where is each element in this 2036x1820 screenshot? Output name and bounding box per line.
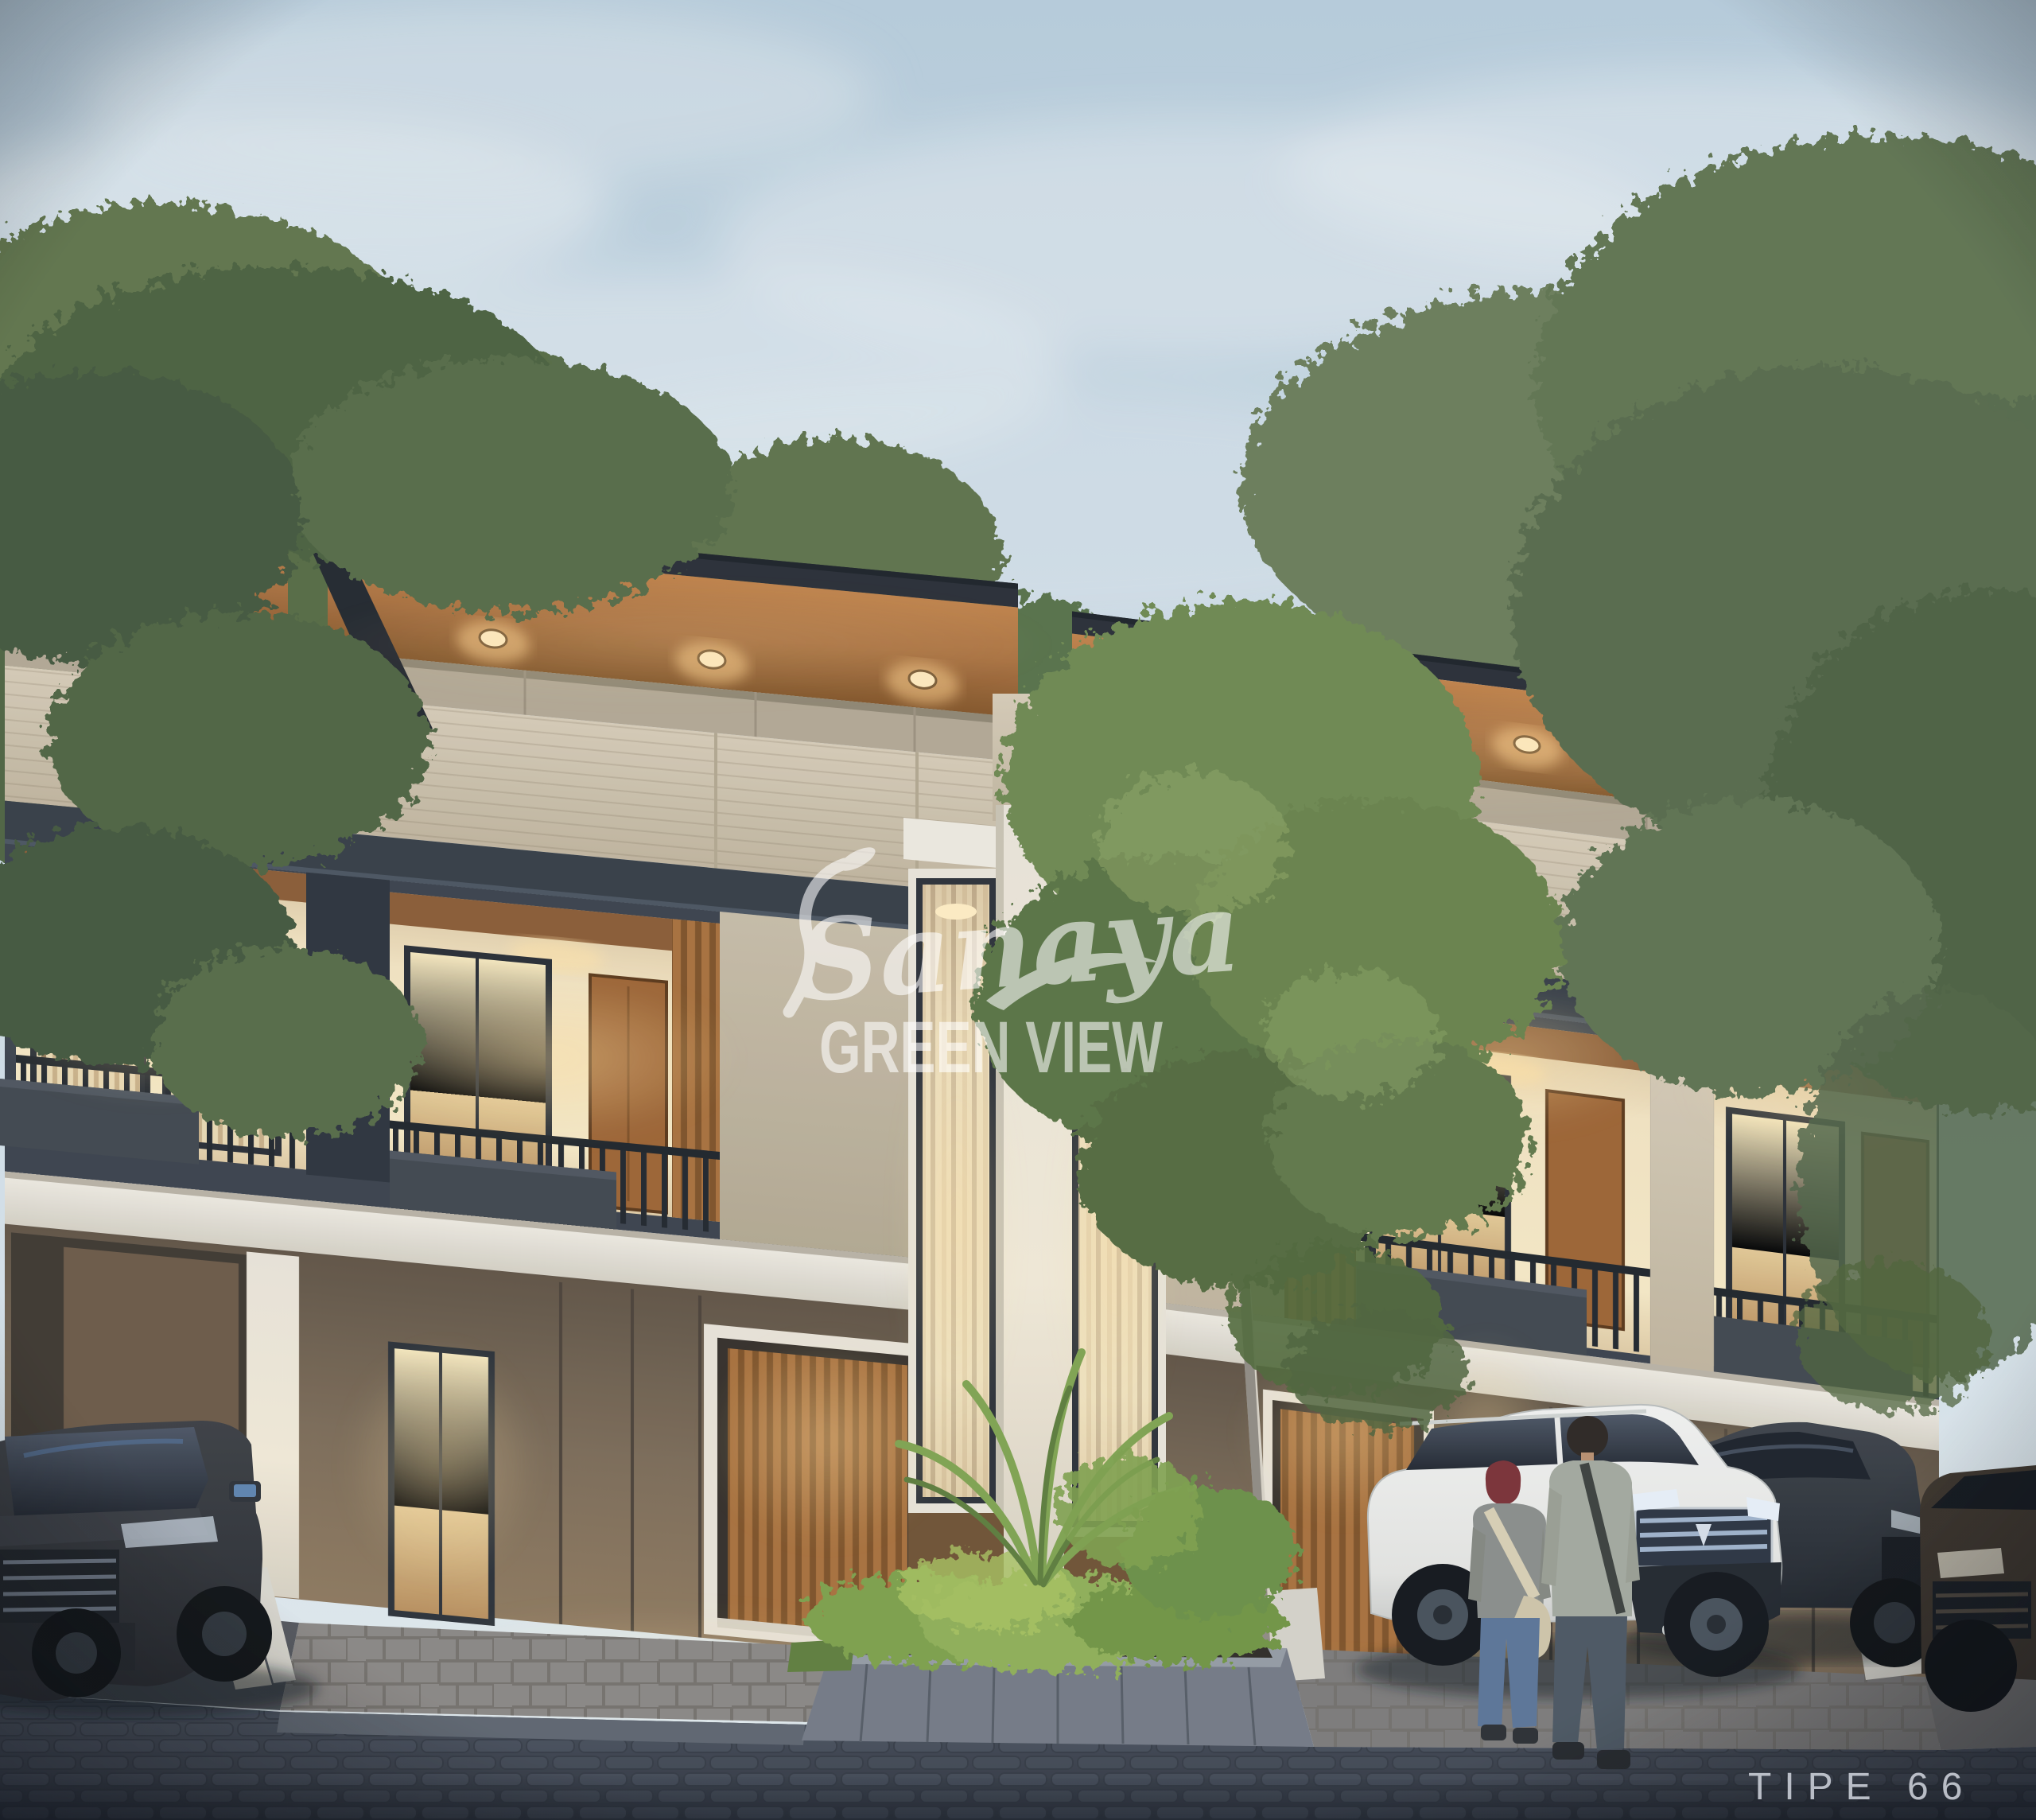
watermark-caps: GREEN VIEW xyxy=(819,1007,1163,1088)
caption-tipe: TIPE 66 xyxy=(1748,1766,1975,1808)
render-canvas: Sanaya GREEN VIEW TIPE 66 xyxy=(0,0,2036,1820)
scene-svg: Sanaya GREEN VIEW TIPE 66 xyxy=(0,0,2036,1820)
